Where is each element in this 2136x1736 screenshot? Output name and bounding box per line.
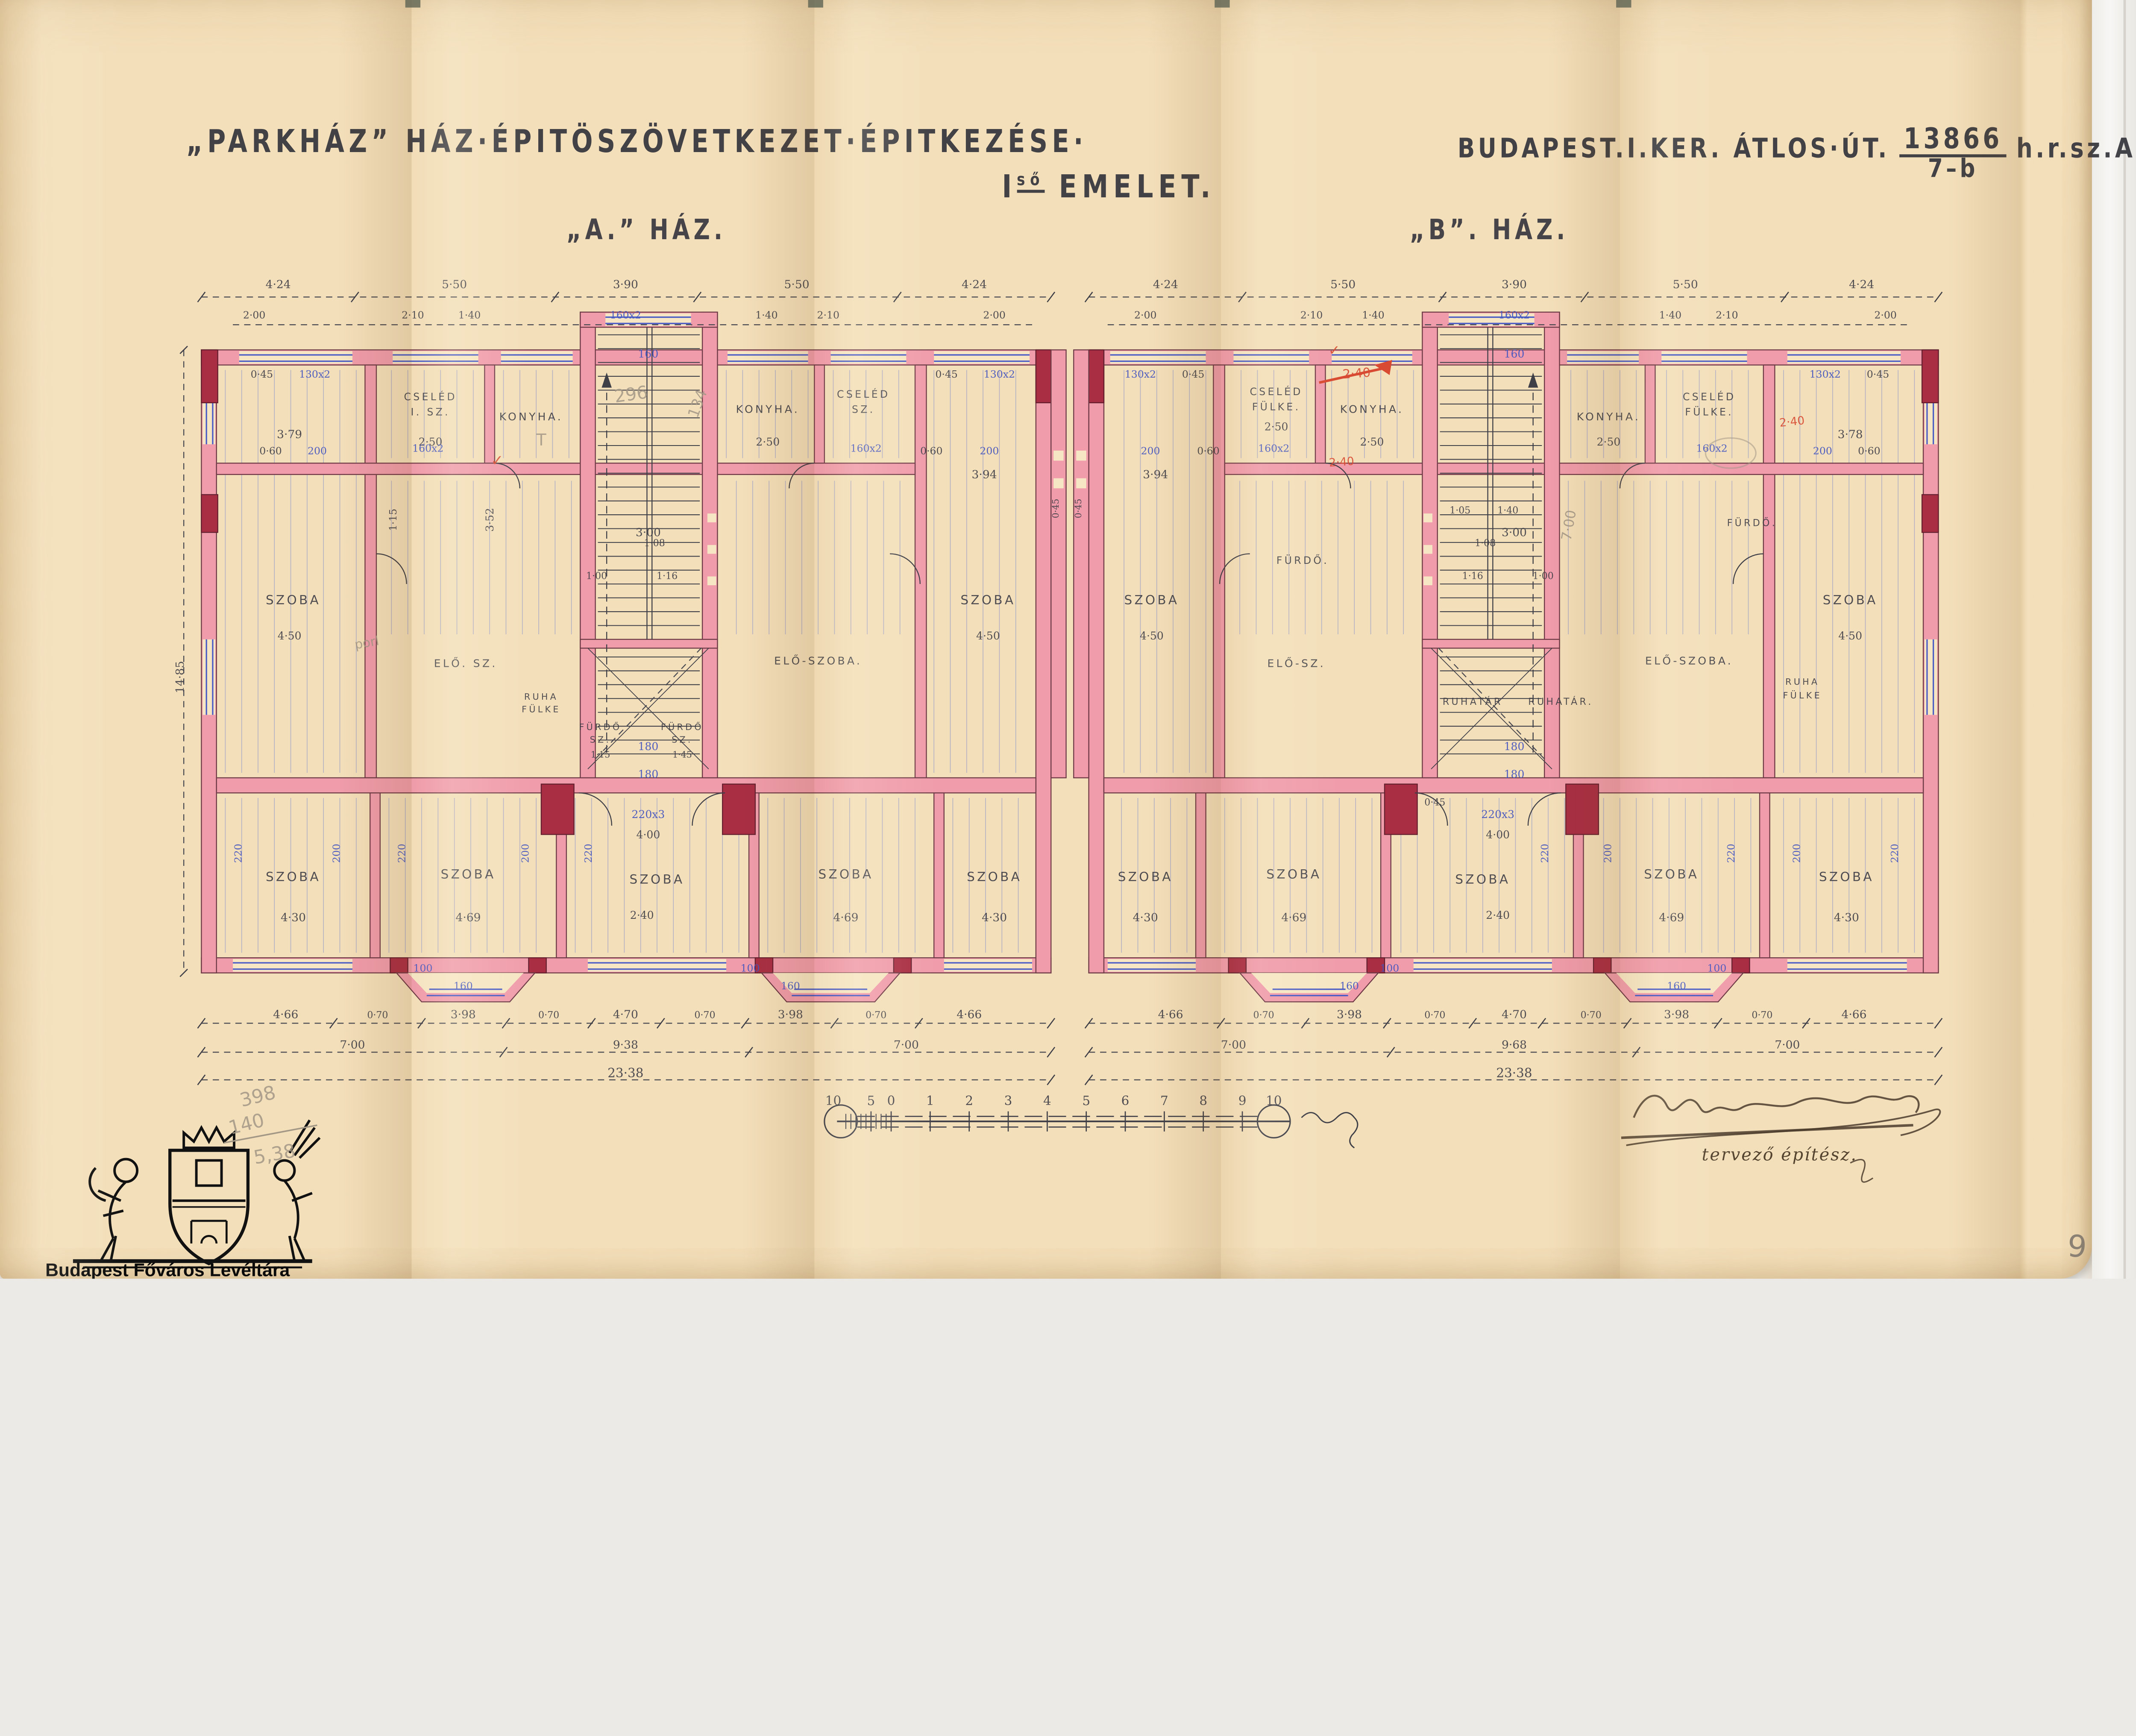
room-label: SZ. [852, 403, 875, 415]
dimension-label: 4·24 [1153, 278, 1178, 291]
dimension-label: 2·00 [983, 309, 1005, 321]
dimension-label: 4·50 [278, 630, 302, 642]
dimension-label: 160x2 [850, 443, 881, 455]
room-label: SZOBA [967, 869, 1022, 884]
dimension-label: 2·40 [1342, 365, 1371, 381]
dimension-label: 3·94 [972, 468, 997, 481]
floor-title: Iső EMELET. [1002, 169, 1215, 205]
dimension-label: 3·90 [613, 278, 638, 291]
room-label: SZOBA [441, 867, 496, 882]
dimension-label: 100 [413, 962, 432, 974]
dimension-label: 3·98 [1664, 1008, 1689, 1021]
dimension-label: 4·50 [976, 630, 1000, 642]
scale-tick-label: 4 [1043, 1094, 1051, 1108]
room-label: SZOBA [1455, 872, 1510, 886]
drawing-title: „PARKHÁZ” HÁZ·ÉPITÖSZÖVETKEZET·ÉPITKEZÉS… [186, 122, 1088, 160]
dimension-label: 3·98 [778, 1008, 803, 1021]
house-b-plan [1089, 312, 1939, 1002]
dimension-label: 160x2 [412, 443, 443, 455]
room-label: ELŐ. SZ. [434, 657, 498, 670]
dimension-label: 0·70 [1752, 1010, 1772, 1021]
room-label: RUHA [524, 692, 558, 702]
house-a-plan [201, 312, 1051, 1002]
scale-tick-label: 9 [1238, 1094, 1247, 1108]
dimension-label: 4·30 [1133, 911, 1158, 924]
dimension-label: 2·10 [402, 309, 424, 321]
room-label: CSELÉD [1250, 386, 1303, 398]
dimension-label: 2·40 [1779, 414, 1805, 430]
page-number: 9 [2066, 1228, 2088, 1265]
dimension-label: 7·00 [1558, 509, 1579, 542]
scale-tick-label: 6 [1121, 1094, 1130, 1108]
dimension-label: 4·70 [613, 1008, 638, 1021]
dimension-label: 100 [1707, 962, 1726, 974]
room-label: FÜRDŐ [579, 721, 622, 732]
dimension-label: 0·70 [538, 1010, 559, 1021]
dimension-label: 1·40 [458, 309, 481, 321]
dimension-label: 0·45 [1424, 797, 1445, 808]
dimension-label: 3·90 [1502, 278, 1527, 291]
pencil-note-line: 398 [238, 1082, 278, 1111]
dimension-label: 200 [1141, 445, 1160, 457]
dimension-label: 5·50 [1673, 278, 1698, 291]
dimension-label: 4·66 [957, 1008, 982, 1021]
dimension-label: 1·40 [1659, 309, 1681, 321]
dimension-label: 160 [1667, 980, 1686, 992]
archive-name: Budapest Főváros Levéltára [45, 1260, 290, 1279]
dimension-label: 160x2 [1258, 443, 1289, 455]
dimension-label: 160x2 [610, 309, 641, 321]
dimension-label: 4·69 [456, 911, 481, 924]
room-label: FÜRDŐ [661, 721, 704, 732]
dimension-label: 2·10 [817, 309, 839, 321]
room-label: SZOBA [1823, 592, 1878, 607]
dimension-label: 160x2 [1499, 309, 1530, 321]
dimension-label: 130x2 [1810, 368, 1841, 380]
dimension-label: 4·24 [962, 278, 987, 291]
dimension-label: 4·00 [637, 828, 660, 841]
room-label: SZOBA [1819, 869, 1874, 884]
dimension-label: 3·94 [1143, 468, 1168, 481]
dimension-label: 2·50 [1360, 436, 1384, 448]
lot-number-fraction: 13866 7–b [1900, 126, 2006, 184]
room-label: FÜLKE [1783, 690, 1822, 701]
dimension-label: 2·10 [1716, 309, 1738, 321]
dimension-label: 220x3 [1481, 808, 1514, 821]
dimension-label: 4·24 [1849, 278, 1874, 291]
dimension-label: 220 [1889, 844, 1901, 863]
dimension-label: 0·45 [1050, 499, 1061, 518]
dimension-label: 2·40 [630, 909, 654, 921]
dimension-label: 14·85 [173, 661, 187, 693]
dimension-label: 0·45 [1182, 368, 1204, 380]
dimension-label: T [536, 431, 546, 450]
dimension-label: 23·38 [607, 1066, 643, 1080]
dimension-label: 1·08 [644, 538, 665, 549]
scale-tick-label: 5 [1082, 1094, 1090, 1108]
dimension-label: ✓ [491, 452, 504, 469]
dimension-label: 3·98 [451, 1008, 476, 1021]
scale-tick-label: 5 [867, 1094, 875, 1108]
room-label: FÜLKE [522, 704, 560, 715]
dimension-label: 4·50 [1838, 630, 1862, 642]
scale-tick-label: 7 [1160, 1094, 1168, 1108]
scale-tick-label: 10 [825, 1094, 841, 1108]
room-label: KONYHA. [1340, 403, 1404, 415]
dimension-label: 2·00 [243, 309, 265, 321]
dimension-label: 4·50 [1140, 630, 1164, 642]
dimension-label: 4·66 [1158, 1008, 1183, 1021]
room-label: RUHA [1785, 677, 1819, 687]
dimension-label: 0·60 [920, 445, 942, 457]
dimension-label: 220 [1539, 844, 1551, 863]
dimension-label: 2·50 [756, 436, 780, 448]
room-label: SZOBA [266, 592, 321, 607]
dimension-label: 2·00 [1134, 309, 1156, 321]
room-label: FÜRDŐ. [1727, 518, 1777, 529]
dimension-label: 1·40 [1497, 505, 1518, 516]
room-label: FÜRDŐ. [1276, 554, 1329, 566]
pencil-note-line: 140 [226, 1109, 267, 1139]
dimension-label: 4·30 [1834, 911, 1859, 924]
signature-role: tervező építész. [1702, 1145, 1857, 1165]
dimension-label: 130x2 [984, 368, 1015, 380]
dimension-label: 4·30 [281, 911, 306, 924]
dimension-label: ✓ [1329, 342, 1340, 358]
dimension-label: 5·50 [1330, 278, 1356, 291]
room-label: SZOBA [960, 592, 1015, 607]
dimension-label: 0·70 [694, 1010, 715, 1021]
dimension-label: 3·98 [1337, 1008, 1362, 1021]
dimension-label: 220 [396, 844, 408, 863]
dimension-label: 1·16 [657, 570, 678, 581]
scale-tick-label: 0 [887, 1094, 895, 1108]
pencil-note-line: 5,38 [252, 1140, 297, 1169]
dimension-label: 130x2 [1125, 368, 1156, 380]
room-label: I. SZ. [411, 406, 450, 418]
dimension-label: 4·69 [1659, 911, 1684, 924]
dimension-label: 4·70 [1502, 1008, 1527, 1021]
dimension-label: 4·66 [1842, 1008, 1867, 1021]
dimension-label: 0·70 [866, 1010, 886, 1021]
dimension-label: 200 [308, 445, 327, 457]
house-a-label: „A.” HÁZ. [566, 214, 726, 247]
room-label: SZOBA [1118, 869, 1173, 884]
dimension-label: 200 [1790, 844, 1802, 863]
dimension-label: 9·68 [1502, 1038, 1527, 1051]
scale-bar: 105012345678910 [824, 1094, 1358, 1148]
footer-area: Budapest Főváros Levéltára 1050123456789… [0, 1080, 2136, 1279]
room-label: SZ. [590, 734, 611, 745]
dimension-label: 180 [638, 740, 658, 753]
dimension-label: 2·50 [1597, 436, 1621, 448]
dimension-label: 160x2 [1696, 443, 1727, 455]
dimension-label: 1·15 [590, 750, 610, 760]
scale-tick-label: 10 [1266, 1094, 1282, 1108]
room-label: ELŐ-SZOBA. [774, 654, 862, 667]
dimension-label: 2·50 [1265, 421, 1288, 433]
dimension-label: 200 [519, 844, 531, 863]
room-label: RUHATÁR. [1528, 696, 1593, 707]
room-label: CSELÉD [1683, 391, 1736, 403]
room-label: SZOBA [1266, 867, 1321, 882]
dimension-label: 160 [781, 980, 800, 992]
dimension-label: 1·16 [1462, 570, 1483, 581]
dimension-label: 160 [1504, 348, 1525, 360]
dimension-label: 0·70 [367, 1010, 388, 1021]
dimension-label: 0·60 [259, 445, 282, 457]
room-label: RUHATÁR [1443, 696, 1503, 707]
dimension-label: 7·00 [340, 1038, 365, 1051]
room-label: CSELÉD [837, 388, 890, 400]
dimension-label: 200 [1602, 844, 1614, 863]
dimension-label: 3·00 [1502, 526, 1527, 539]
dimension-label: 0·45 [1073, 499, 1083, 518]
lot-denominator: 7–b [1900, 158, 2006, 184]
dimension-label: 1·05 [1449, 505, 1470, 516]
scale-tick-label: 3 [1004, 1094, 1012, 1108]
dimension-label: 0·60 [1858, 445, 1880, 457]
dimension-label: 5·50 [784, 278, 810, 291]
dimension-label: 2·40 [1329, 455, 1355, 469]
dimension-label: 3·00 [636, 526, 661, 539]
dimension-label: 2·40 [1486, 909, 1510, 921]
room-label: FÜLKE. [1685, 406, 1734, 418]
dimension-label: 4·69 [1281, 911, 1306, 924]
dimension-label: 180 [1504, 768, 1525, 780]
room-label: SZOBA [266, 869, 321, 884]
dimension-label: 1·45 [672, 750, 692, 760]
dimension-label: 1·08 [1475, 538, 1496, 549]
dimension-label: 1·40 [755, 309, 778, 321]
dimension-label: 160 [1340, 980, 1359, 992]
room-label: SZOBA [1124, 592, 1179, 607]
scale-tick-label: 1 [926, 1094, 934, 1108]
floor-plan-drawing: SZOBASZOBASZOBASZOBASZOBASZOBASZOBACSELÉ… [164, 262, 1970, 1086]
dimension-label: 0·45 [935, 368, 957, 380]
dimension-label: 9·38 [613, 1038, 638, 1051]
room-label: KONYHA. [736, 403, 800, 415]
dimension-label: 5·50 [442, 278, 467, 291]
dimension-label: 0·60 [1197, 445, 1219, 457]
dimension-label: 100 [741, 962, 760, 974]
dimension-label: 0·70 [1253, 1010, 1274, 1021]
room-label: SZOBA [1644, 867, 1699, 882]
room-label: SZOBA [818, 867, 873, 882]
dimension-label: 0·45 [1867, 368, 1889, 380]
dimension-label: 2·10 [1300, 309, 1323, 321]
room-label: KONYHA. [499, 411, 563, 423]
dimension-label: 180 [638, 768, 658, 780]
dimension-label: 296 [613, 382, 649, 407]
dimension-label: 4·66 [273, 1008, 298, 1021]
dimension-label: 200 [1813, 445, 1832, 457]
dimension-label: 4·00 [1486, 828, 1510, 841]
dimension-label: 7·00 [1221, 1038, 1246, 1051]
dimension-label: 23·38 [1496, 1066, 1532, 1080]
dimension-label: 100 [1380, 962, 1399, 974]
scale-tick-label: 2 [965, 1094, 973, 1108]
dimension-label: 200 [980, 445, 999, 457]
dimension-label: 1·15 [387, 509, 399, 531]
dimension-label: 160 [454, 980, 473, 992]
dimension-label: 1·00 [1533, 570, 1554, 581]
dimension-label: 7·00 [1775, 1038, 1800, 1051]
dimension-label: 7·00 [894, 1038, 919, 1051]
dimension-label: 4·30 [982, 911, 1007, 924]
dimension-label: 220 [232, 844, 244, 863]
dimension-label: 1·40 [1362, 309, 1384, 321]
room-label: ELŐ-SZOBA. [1645, 654, 1733, 667]
dimension-label: 200 [331, 844, 343, 863]
dimension-label: 2·00 [1874, 309, 1896, 321]
dimension-label: 3·78 [1838, 428, 1863, 441]
room-label: KONYHA. [1577, 411, 1640, 423]
dimension-label: 4·24 [266, 278, 291, 291]
room-label: SZ. [672, 734, 693, 745]
dimension-label: 220 [1725, 844, 1737, 863]
room-label: SZOBA [630, 872, 685, 886]
dimension-label: 0·70 [1424, 1010, 1445, 1021]
scale-tick-label: 8 [1199, 1094, 1207, 1108]
address-line: BUDAPEST.I.KER. ÁTLOS·ÚT. 13866 7–b h.r.… [1458, 120, 2136, 178]
address-text: BUDAPEST.I.KER. ÁTLOS·ÚT. [1458, 133, 1890, 164]
dimension-label: 0·70 [1581, 1010, 1602, 1021]
scanned-blueprint-page: „PARKHÁZ” HÁZ·ÉPITÖSZÖVETKEZET·ÉPITKEZÉS… [0, 0, 2136, 1279]
dimension-label: 220x3 [631, 808, 665, 821]
address-suffix: h.r.sz.A. [2016, 133, 2136, 164]
house-b-label: „B”. HÁZ. [1410, 214, 1569, 247]
dimension-label: 4·69 [833, 911, 858, 924]
dimension-label: 220 [582, 844, 594, 863]
dimension-label: 1·00 [586, 570, 607, 581]
dimension-label: 3·79 [277, 428, 302, 441]
dimension-label: 160 [638, 348, 658, 360]
dimension-label: 0·45 [251, 368, 273, 380]
architect-signature [1621, 1096, 1940, 1182]
room-label: FÜLKE. [1252, 401, 1301, 413]
dimension-label: 180 [1504, 740, 1525, 753]
room-label: CSELÉD [404, 391, 457, 403]
dimension-label: 3·52 [484, 508, 496, 532]
room-label: ELŐ-SZ. [1267, 657, 1326, 670]
dimension-label: 130x2 [299, 368, 330, 380]
lot-numerator: 13866 [1900, 126, 2006, 158]
